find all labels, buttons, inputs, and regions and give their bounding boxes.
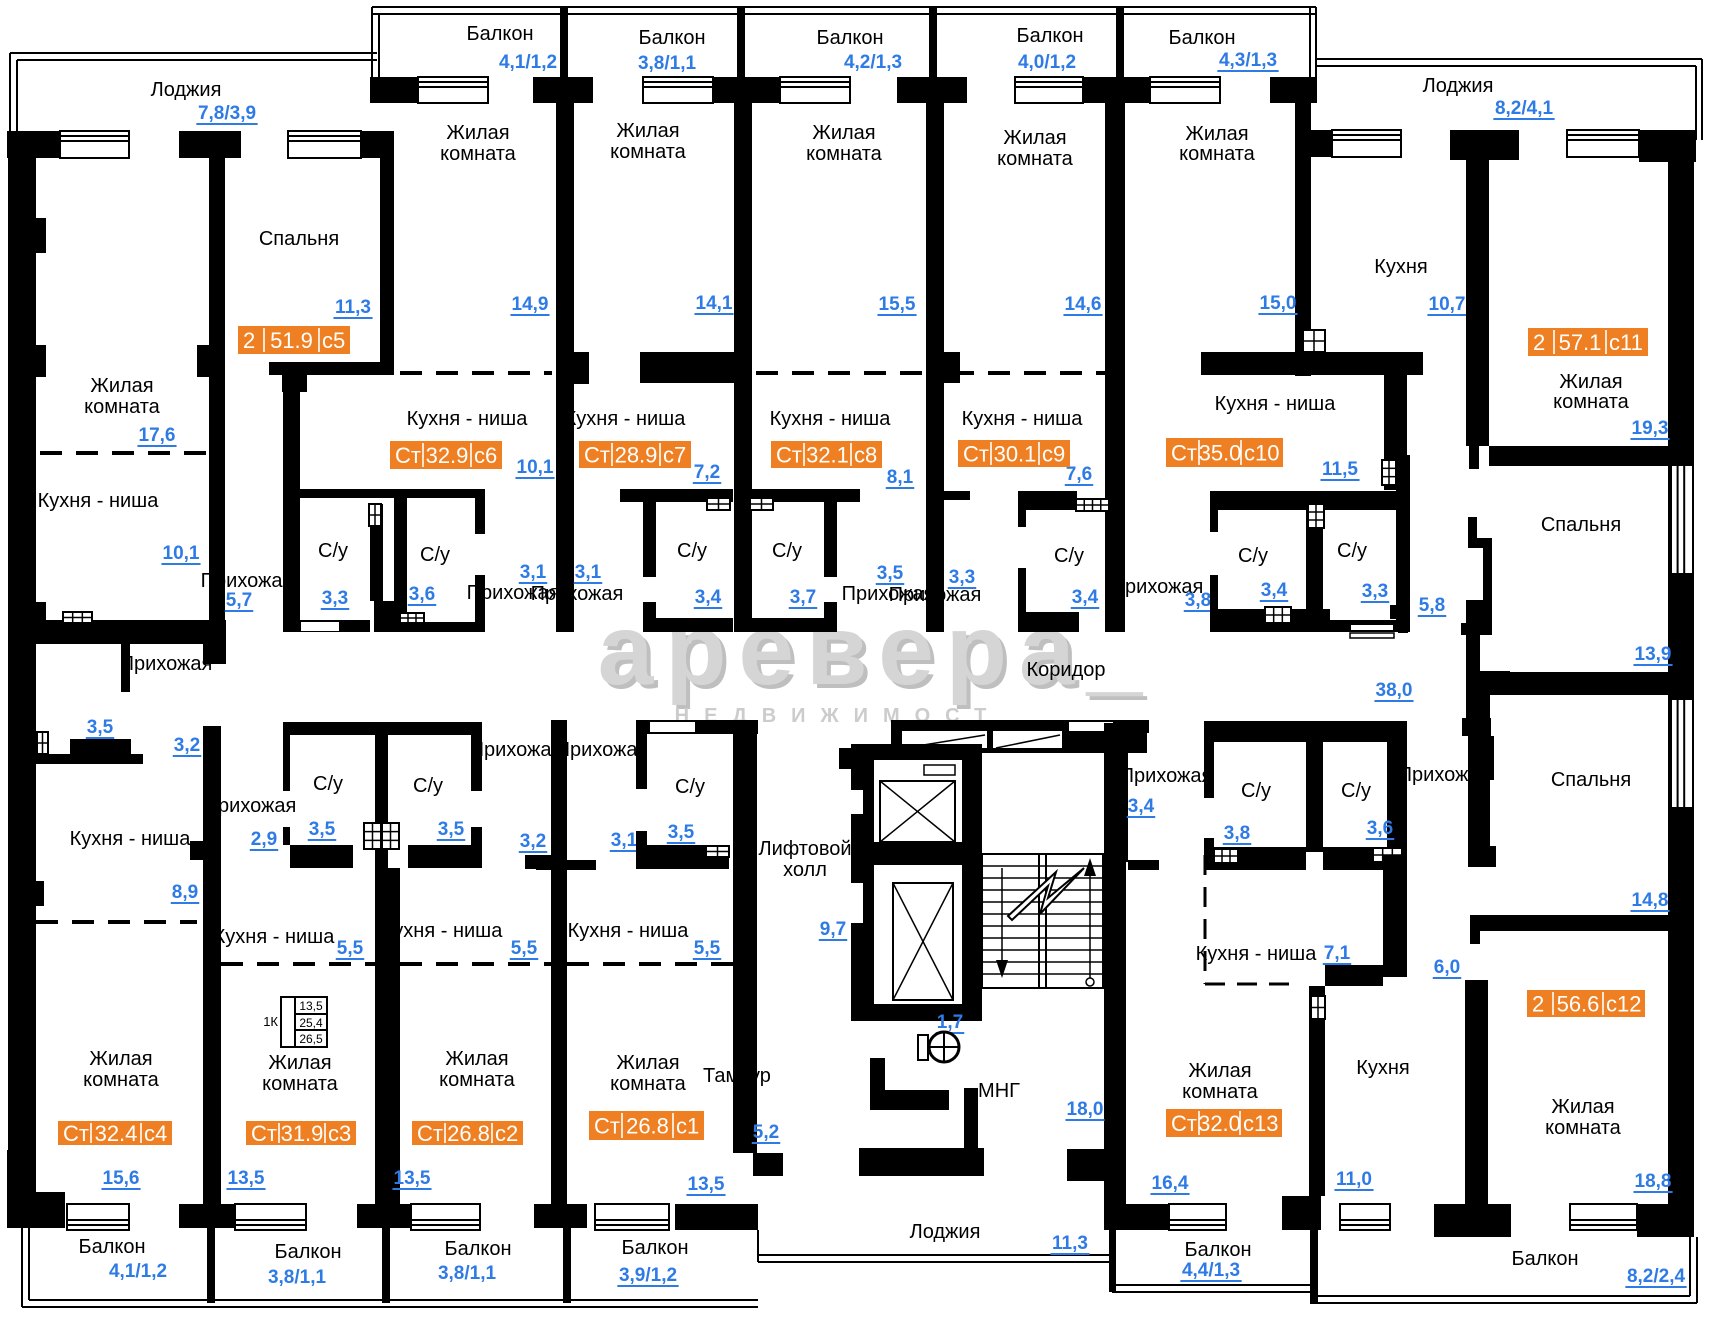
- svg-text:51.9: 51.9: [270, 328, 313, 353]
- svg-text:Балкон: Балкон: [1511, 1248, 1578, 1270]
- svg-text:Коридор: Коридор: [1027, 659, 1106, 681]
- svg-text:5,2: 5,2: [753, 1122, 779, 1143]
- svg-text:25,4: 25,4: [299, 1016, 323, 1030]
- svg-text:3,8/1,1: 3,8/1,1: [638, 53, 697, 74]
- svg-text:14,1: 14,1: [696, 293, 733, 314]
- svg-text:С/у: С/у: [318, 540, 348, 562]
- svg-text:5,5: 5,5: [337, 938, 364, 959]
- svg-text:4,4/1,3: 4,4/1,3: [1182, 1260, 1240, 1281]
- svg-text:С/у: С/у: [1238, 545, 1268, 567]
- svg-text:31.9: 31.9: [281, 1121, 324, 1146]
- svg-text:6,0: 6,0: [1434, 957, 1460, 978]
- svg-text:с10: с10: [1244, 441, 1279, 466]
- svg-text:26,5: 26,5: [299, 1032, 323, 1046]
- svg-text:3,9/1,2: 3,9/1,2: [619, 1265, 677, 1286]
- svg-text:13,5: 13,5: [228, 1168, 265, 1189]
- svg-text:Балкон: Балкон: [78, 1236, 145, 1258]
- svg-text:Кухня - ниша: Кухня - ниша: [38, 490, 160, 512]
- svg-text:32.1: 32.1: [806, 443, 849, 468]
- svg-text:Ст: Ст: [251, 1121, 277, 1146]
- svg-text:Балкон: Балкон: [1016, 25, 1083, 47]
- svg-text:Жилая: Жилая: [89, 1048, 152, 1070]
- svg-text:3,7: 3,7: [790, 587, 816, 608]
- svg-text:5,8: 5,8: [1419, 595, 1445, 616]
- svg-text:с3: с3: [328, 1121, 351, 1146]
- svg-text:комната: комната: [440, 143, 517, 165]
- svg-text:с7: с7: [663, 443, 686, 468]
- svg-text:15,6: 15,6: [103, 1168, 140, 1189]
- svg-text:38,0: 38,0: [1376, 680, 1413, 701]
- svg-text:Лоджия: Лоджия: [910, 1221, 981, 1243]
- svg-text:3,5: 3,5: [668, 822, 695, 843]
- svg-text:8,9: 8,9: [172, 882, 198, 903]
- svg-text:Лоджия: Лоджия: [151, 79, 222, 101]
- svg-text:56.6: 56.6: [1557, 992, 1600, 1017]
- svg-text:Прихожая: Прихожая: [204, 795, 297, 817]
- svg-text:26.8: 26.8: [447, 1121, 490, 1146]
- svg-text:комната: комната: [610, 1073, 687, 1095]
- svg-text:4,3/1,3: 4,3/1,3: [1219, 50, 1277, 71]
- svg-text:Балкон: Балкон: [274, 1241, 341, 1263]
- svg-text:Кухня - ниша: Кухня - ниша: [382, 920, 504, 942]
- svg-text:5,5: 5,5: [511, 938, 538, 959]
- svg-text:с1: с1: [676, 1114, 699, 1139]
- svg-text:Жилая: Жилая: [616, 1052, 679, 1074]
- svg-text:10,7: 10,7: [1429, 294, 1466, 315]
- svg-text:Ст: Ст: [584, 443, 610, 468]
- svg-text:Спальня: Спальня: [259, 228, 339, 250]
- svg-text:Тамбур: Тамбур: [703, 1065, 771, 1087]
- svg-text:11,3: 11,3: [335, 297, 371, 318]
- svg-text:холл: холл: [783, 859, 827, 881]
- svg-text:МНГ: МНГ: [978, 1080, 1020, 1102]
- svg-text:3,3: 3,3: [1362, 581, 1388, 602]
- svg-text:18,8: 18,8: [1635, 1171, 1672, 1192]
- svg-text:Ст: Ст: [776, 443, 802, 468]
- svg-text:Жилая: Жилая: [1559, 371, 1622, 393]
- svg-text:3,3: 3,3: [949, 567, 975, 588]
- svg-text:3,8: 3,8: [1224, 823, 1250, 844]
- svg-text:3,1: 3,1: [520, 562, 547, 583]
- svg-text:5,5: 5,5: [694, 938, 721, 959]
- svg-text:7,8/3,9: 7,8/3,9: [198, 103, 256, 124]
- svg-text:3,6: 3,6: [409, 584, 435, 605]
- svg-text:15,5: 15,5: [879, 294, 916, 315]
- svg-text:Ст: Ст: [395, 443, 421, 468]
- svg-text:3,5: 3,5: [877, 563, 904, 584]
- svg-text:Кухня - ниша: Кухня - ниша: [770, 408, 892, 430]
- svg-text:4,1/1,2: 4,1/1,2: [499, 52, 557, 73]
- svg-text:С/у: С/у: [1341, 780, 1371, 802]
- svg-text:2,9: 2,9: [251, 829, 277, 850]
- svg-text:Балкон: Балкон: [444, 1238, 511, 1260]
- svg-text:3,4: 3,4: [1261, 580, 1288, 601]
- svg-text:4,1/1,2: 4,1/1,2: [109, 1261, 167, 1282]
- svg-text:15,0: 15,0: [1260, 293, 1297, 314]
- svg-text:13,5: 13,5: [394, 1168, 431, 1189]
- svg-text:3,1: 3,1: [611, 830, 638, 851]
- svg-text:14,6: 14,6: [1065, 294, 1102, 315]
- svg-text:Балкон: Балкон: [816, 27, 883, 49]
- svg-text:Кухня - ниша: Кухня - ниша: [1196, 943, 1318, 965]
- svg-text:32.9: 32.9: [426, 443, 469, 468]
- svg-text:35.0: 35.0: [1199, 441, 1242, 466]
- svg-text:26.8: 26.8: [626, 1114, 669, 1139]
- svg-text:7,2: 7,2: [694, 462, 720, 483]
- svg-text:Кухня - ниша: Кухня - ниша: [568, 920, 690, 942]
- svg-text:3,4: 3,4: [1072, 587, 1099, 608]
- svg-text:с6: с6: [474, 443, 497, 468]
- svg-text:3,1: 3,1: [575, 562, 602, 583]
- svg-text:Спальня: Спальня: [1551, 769, 1631, 791]
- svg-text:9,7: 9,7: [820, 919, 846, 940]
- svg-text:Жилая: Жилая: [1003, 127, 1066, 149]
- svg-text:13,9: 13,9: [1635, 644, 1672, 665]
- svg-text:3,8/1,1: 3,8/1,1: [438, 1263, 497, 1284]
- svg-text:комната: комната: [610, 141, 687, 163]
- svg-text:комната: комната: [997, 148, 1074, 170]
- svg-text:Кухня - ниша: Кухня - ниша: [214, 926, 336, 948]
- svg-text:3,4: 3,4: [1128, 796, 1155, 817]
- svg-text:57.1: 57.1: [1559, 330, 1602, 355]
- svg-text:с2: с2: [495, 1121, 518, 1146]
- svg-text:С/у: С/у: [420, 544, 450, 566]
- svg-text:5,7: 5,7: [226, 590, 252, 611]
- svg-text:С/у: С/у: [675, 776, 705, 798]
- svg-text:С/у: С/у: [1241, 780, 1271, 802]
- svg-text:Кухня - ниша: Кухня - ниша: [407, 408, 529, 430]
- svg-text:комната: комната: [1179, 143, 1256, 165]
- svg-text:Лоджия: Лоджия: [1423, 75, 1494, 97]
- svg-text:3,3: 3,3: [322, 588, 348, 609]
- svg-text:Ст: Ст: [963, 442, 989, 467]
- svg-text:3,5: 3,5: [309, 819, 336, 840]
- svg-text:с5: с5: [322, 328, 345, 353]
- svg-text:11,0: 11,0: [1336, 1169, 1372, 1190]
- svg-text:28.9: 28.9: [615, 443, 658, 468]
- svg-text:С/у: С/у: [313, 773, 343, 795]
- svg-text:с13: с13: [1243, 1111, 1278, 1136]
- svg-text:Балкон: Балкон: [638, 27, 705, 49]
- svg-text:14,8: 14,8: [1632, 890, 1669, 911]
- svg-text:17,6: 17,6: [139, 425, 176, 446]
- svg-text:11,3: 11,3: [1052, 1233, 1088, 1254]
- svg-text:4,2/1,3: 4,2/1,3: [844, 52, 902, 73]
- svg-text:Жилая: Жилая: [445, 1048, 508, 1070]
- svg-text:Прихожая: Прихожая: [1120, 765, 1213, 787]
- svg-text:32.0: 32.0: [1198, 1111, 1241, 1136]
- svg-text:2: 2: [1533, 330, 1545, 355]
- svg-text:с9: с9: [1042, 442, 1065, 467]
- svg-text:С/у: С/у: [1054, 545, 1084, 567]
- svg-text:Кухня - ниша: Кухня - ниша: [70, 828, 192, 850]
- svg-text:с8: с8: [854, 443, 877, 468]
- svg-text:комната: комната: [1545, 1117, 1622, 1139]
- svg-text:Жилая: Жилая: [1185, 123, 1248, 145]
- svg-text:10,1: 10,1: [163, 543, 200, 564]
- svg-text:30.1: 30.1: [994, 442, 1037, 467]
- svg-text:комната: комната: [262, 1073, 339, 1095]
- svg-text:Ст: Ст: [1171, 1111, 1197, 1136]
- svg-text:3,5: 3,5: [87, 717, 114, 738]
- svg-text:3,6: 3,6: [1367, 818, 1393, 839]
- svg-text:18,0: 18,0: [1067, 1099, 1104, 1120]
- svg-text:13,5: 13,5: [688, 1174, 725, 1195]
- svg-text:19,3: 19,3: [1632, 418, 1669, 439]
- svg-text:С/у: С/у: [677, 540, 707, 562]
- svg-text:комната: комната: [83, 1069, 160, 1091]
- svg-text:С/у: С/у: [413, 775, 443, 797]
- svg-text:Ст: Ст: [594, 1114, 620, 1139]
- svg-text:3,8: 3,8: [1185, 590, 1211, 611]
- svg-text:4,0/1,2: 4,0/1,2: [1018, 52, 1076, 73]
- svg-text:13,5: 13,5: [299, 999, 323, 1013]
- svg-text:с12: с12: [1606, 992, 1641, 1017]
- svg-text:комната: комната: [84, 396, 161, 418]
- svg-text:1К: 1К: [263, 1014, 278, 1029]
- svg-text:Жилая: Жилая: [446, 122, 509, 144]
- svg-text:С/у: С/у: [1337, 540, 1367, 562]
- svg-text:10,1: 10,1: [517, 457, 554, 478]
- svg-text:Кухня: Кухня: [1374, 256, 1428, 278]
- svg-text:3,5: 3,5: [438, 819, 465, 840]
- svg-text:8,2/2,4: 8,2/2,4: [1627, 1266, 1686, 1287]
- svg-text:Жилая: Жилая: [268, 1052, 331, 1074]
- svg-text:8,1: 8,1: [887, 467, 914, 488]
- svg-text:комната: комната: [439, 1069, 516, 1091]
- svg-text:Балкон: Балкон: [621, 1237, 688, 1259]
- svg-text:7,6: 7,6: [1066, 464, 1092, 485]
- svg-text:С/у: С/у: [772, 540, 802, 562]
- svg-text:Ст: Ст: [417, 1121, 443, 1146]
- svg-text:Балкон: Балкон: [466, 23, 533, 45]
- svg-text:16,4: 16,4: [1152, 1173, 1189, 1194]
- svg-text:3,8/1,1: 3,8/1,1: [268, 1267, 327, 1288]
- svg-text:8,2/4,1: 8,2/4,1: [1495, 98, 1554, 119]
- svg-text:Прихожая: Прихожая: [201, 570, 294, 592]
- svg-text:Ст: Ст: [1171, 441, 1197, 466]
- svg-text:аревера_: аревера_: [598, 594, 1154, 706]
- svg-text:комната: комната: [1553, 391, 1630, 413]
- svg-text:с4: с4: [144, 1121, 167, 1146]
- svg-text:Кухня - ниша: Кухня - ниша: [962, 408, 1084, 430]
- svg-text:11,5: 11,5: [1322, 459, 1358, 480]
- svg-text:3,2: 3,2: [174, 735, 200, 756]
- svg-text:Кухня: Кухня: [1356, 1057, 1410, 1079]
- svg-text:3,4: 3,4: [695, 587, 722, 608]
- svg-text:Балкон: Балкон: [1184, 1239, 1251, 1261]
- svg-text:32.4: 32.4: [95, 1121, 138, 1146]
- svg-text:Балкон: Балкон: [1168, 27, 1235, 49]
- svg-text:Прихожая: Прихожая: [556, 739, 649, 761]
- svg-text:комната: комната: [1182, 1081, 1259, 1103]
- svg-text:Жилая: Жилая: [812, 122, 875, 144]
- svg-text:1,7: 1,7: [937, 1012, 963, 1033]
- svg-text:Кухня - ниша: Кухня - ниша: [565, 408, 687, 430]
- svg-text:Жилая: Жилая: [616, 120, 679, 142]
- svg-text:Прихожая: Прихожая: [120, 653, 213, 675]
- svg-text:14,9: 14,9: [512, 294, 549, 315]
- svg-text:Лифтовой: Лифтовой: [758, 838, 851, 860]
- svg-text:Прихожая: Прихожая: [470, 739, 563, 761]
- svg-text:Жилая: Жилая: [1188, 1060, 1251, 1082]
- svg-text:Жилая: Жилая: [1551, 1096, 1614, 1118]
- svg-text:2: 2: [1532, 992, 1544, 1017]
- svg-text:Прихожая: Прихожая: [531, 583, 624, 605]
- svg-text:3,2: 3,2: [520, 831, 546, 852]
- svg-text:с11: с11: [1609, 330, 1643, 355]
- svg-text:2: 2: [243, 328, 255, 353]
- svg-text:Жилая: Жилая: [90, 375, 153, 397]
- svg-text:комната: комната: [806, 143, 883, 165]
- svg-text:Ст: Ст: [63, 1121, 89, 1146]
- svg-text:7,1: 7,1: [1324, 943, 1351, 964]
- svg-text:Спальня: Спальня: [1541, 514, 1621, 536]
- svg-text:Кухня - ниша: Кухня - ниша: [1215, 393, 1337, 415]
